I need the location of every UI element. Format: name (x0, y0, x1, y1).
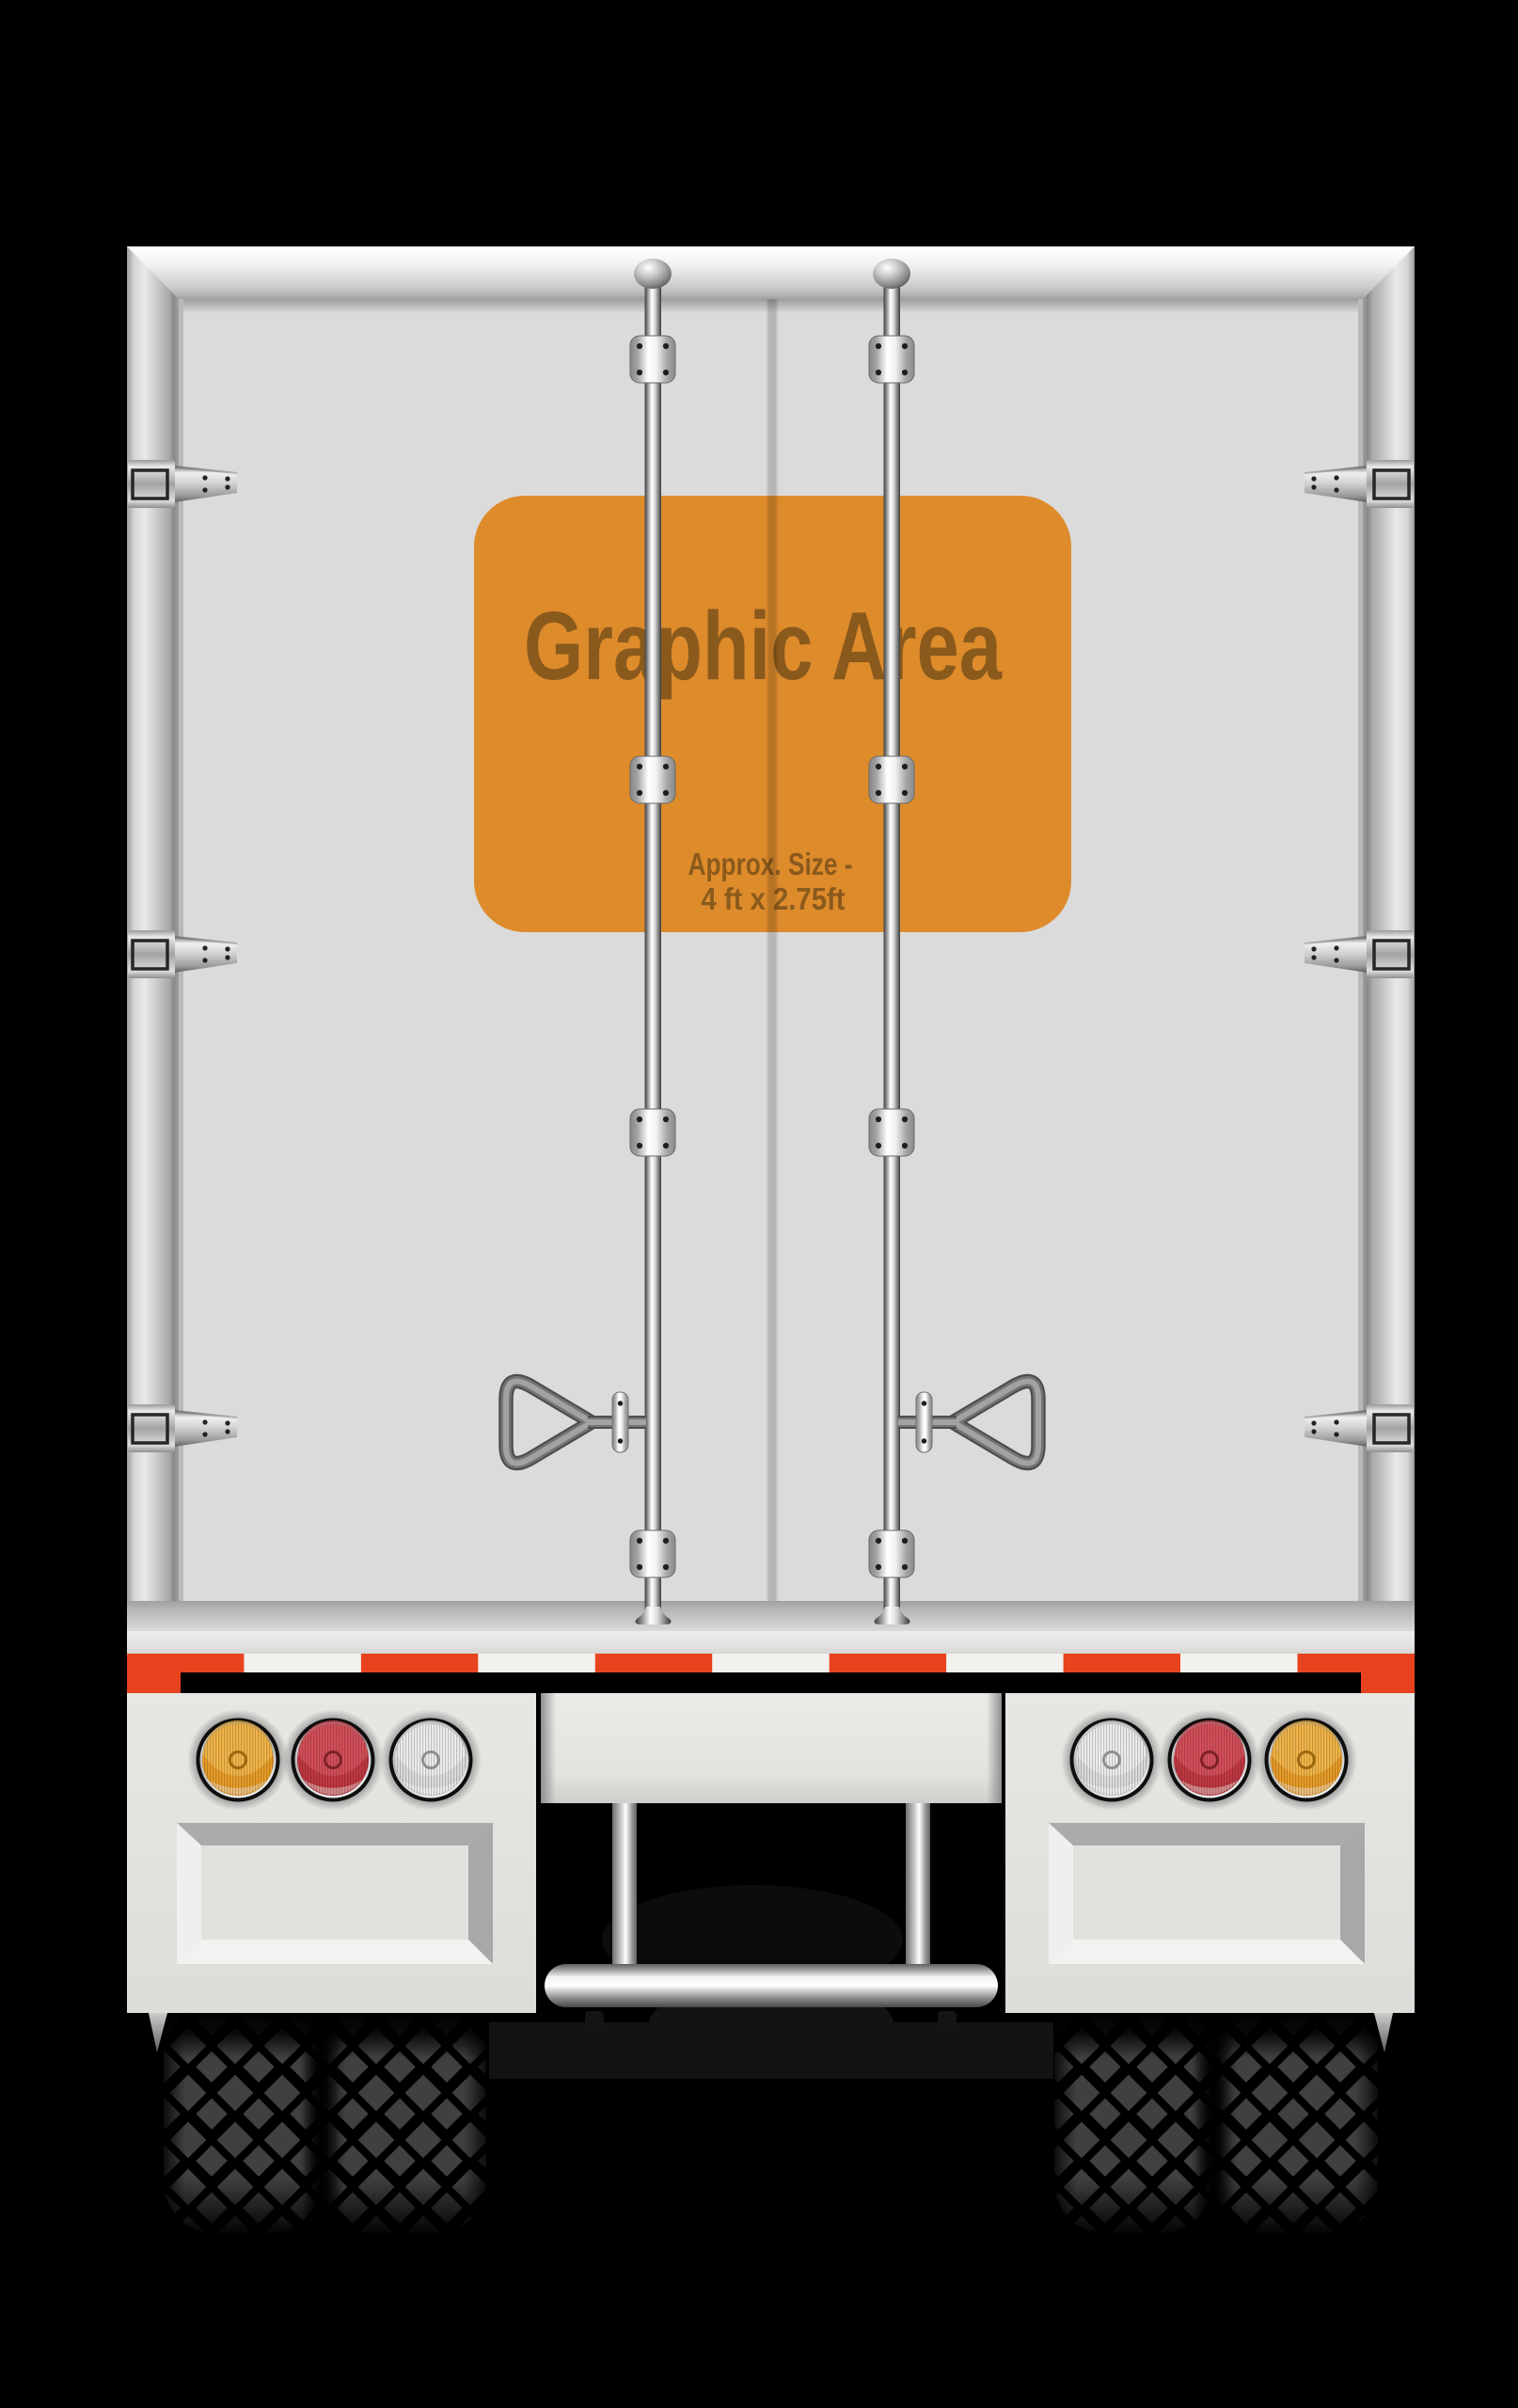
svg-text:Graphic Area: Graphic Area (524, 592, 1003, 700)
